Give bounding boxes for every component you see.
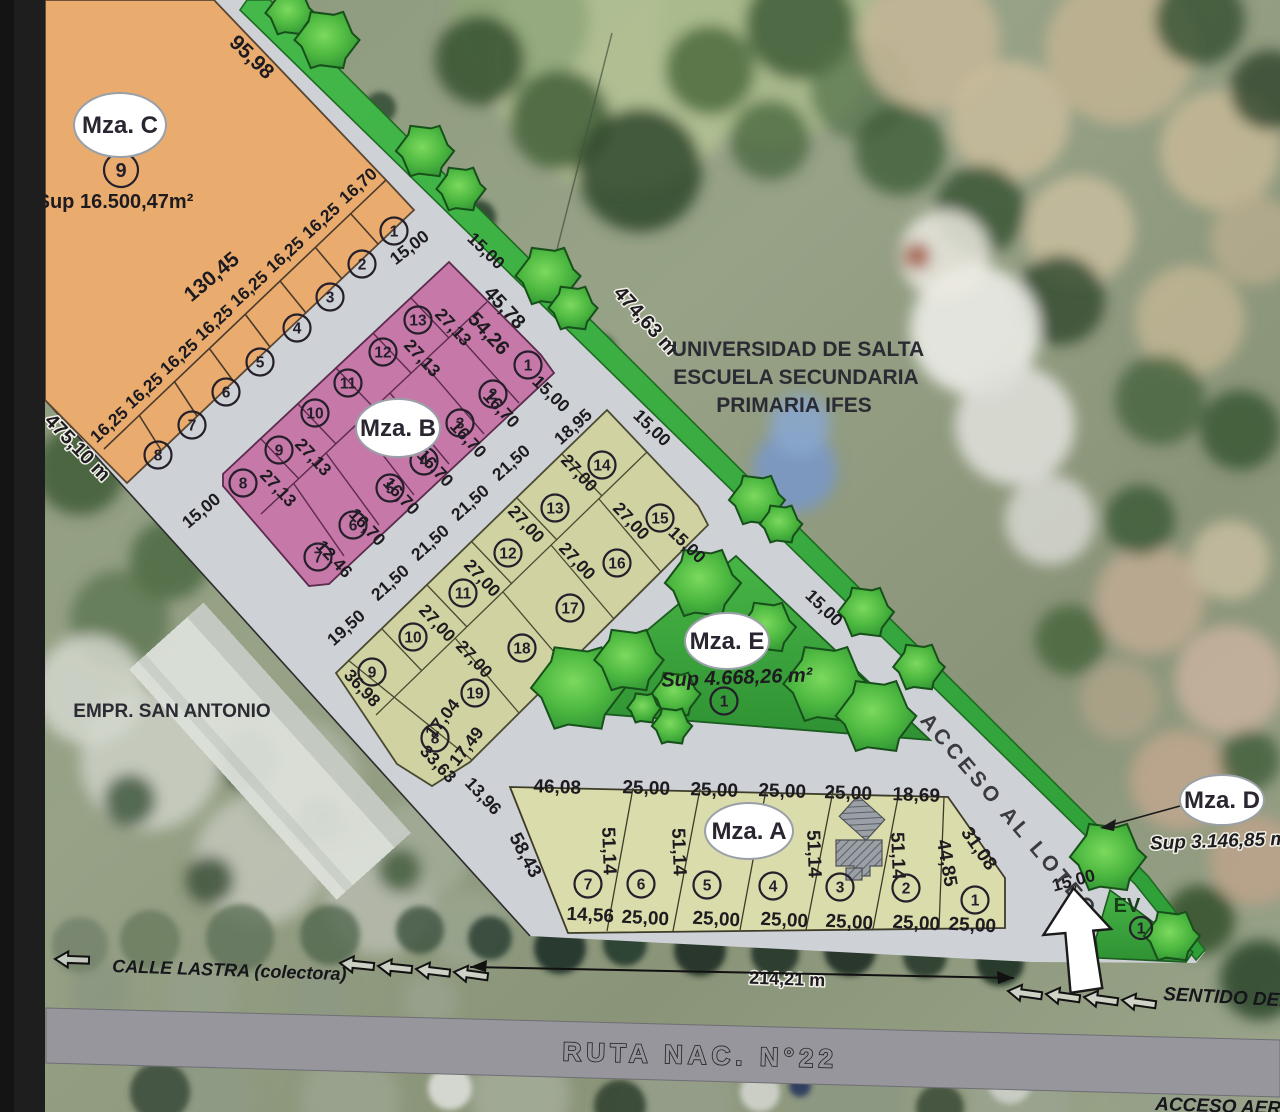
lot-number: 11 — [340, 376, 357, 393]
lot-number: 2 — [902, 881, 911, 898]
lot-number: 16 — [608, 556, 626, 573]
loteo-plan-map: EV RUTA NAC. N°22 95, — [0, 0, 1280, 1112]
dimension-label: 214,21 m — [749, 968, 826, 991]
dimension-label: 51,14 — [667, 828, 690, 877]
mza-a-label-text: Mza. A — [711, 818, 786, 845]
svg-text:PRIMARIA IFES: PRIMARIA IFES — [716, 394, 872, 417]
dimension-label: 14,56 — [566, 904, 615, 927]
mza-e-label: Mza. E — [685, 613, 769, 669]
lot-number: 13 — [409, 313, 427, 330]
lot-number: 5 — [256, 355, 265, 372]
lot-number: 1 — [390, 224, 399, 241]
lot-number: 6 — [222, 385, 231, 402]
dimension-label: 25,00 — [760, 909, 809, 932]
lot-number: 1 — [971, 893, 980, 910]
dimension-label: 25,00 — [948, 914, 997, 937]
lot-number: 8 — [239, 476, 248, 493]
dimension-label: 25,00 — [892, 912, 941, 935]
mza-a-label: Mza. A — [705, 803, 793, 859]
left-border-bar-inner — [0, 0, 14, 1112]
lot-number: 7 — [314, 550, 323, 567]
lot-number: 1 — [1137, 921, 1146, 938]
dimension-label: 25,00 — [692, 908, 741, 931]
lot-number: 2 — [358, 257, 367, 274]
lot-number: 8 — [154, 448, 163, 465]
lot-number: 8 — [431, 731, 440, 748]
dimension-label: 25,00 — [690, 779, 738, 802]
dimension-label: 18,69 — [892, 784, 940, 807]
mza-c-sup: Sup 16.500,47m² — [37, 191, 194, 213]
lot-number: 4 — [293, 321, 302, 338]
lot-number: 12 — [499, 546, 516, 563]
lot-number: 4 — [769, 879, 778, 896]
mza-b-label-text: Mza. B — [360, 415, 436, 442]
lot-number: 15 — [651, 511, 669, 528]
mza-c-label: Mza. C — [74, 93, 166, 157]
svg-text:UNIVERSIDAD DE SALTA: UNIVERSIDAD DE SALTA — [672, 338, 924, 361]
dimension-label: 25,00 — [758, 780, 806, 803]
svg-text:ESCUELA SECUNDARIA: ESCUELA SECUNDARIA — [673, 366, 918, 389]
dimension-label: 51,14 — [886, 832, 909, 881]
lot-number: 11 — [455, 586, 472, 603]
mza-d-label-text: Mza. D — [1184, 787, 1260, 814]
lot-number: 9 — [368, 665, 377, 682]
lot-number: 14 — [593, 458, 611, 475]
lot-number: 12 — [374, 345, 391, 362]
lot-number: 5 — [703, 878, 712, 895]
lot-number: 3 — [836, 880, 845, 897]
lot-number: 18 — [513, 641, 531, 658]
lot-number: 4 — [420, 454, 429, 471]
lot-number: 13 — [546, 501, 564, 518]
lot-number: 7 — [188, 418, 197, 435]
lot-number: 3 — [456, 416, 465, 433]
lot-number: 1 — [524, 358, 533, 375]
lot-number: 9 — [275, 443, 284, 460]
dimension-label: 25,00 — [825, 911, 874, 934]
dimension-label: 51,14 — [802, 830, 825, 879]
lot-number: 5 — [386, 481, 395, 498]
dimension-label: 25,00 — [621, 907, 670, 930]
mza-d-sup: Sup 3.146,85 m² — [1150, 828, 1280, 854]
dimension-label: 25,00 — [824, 782, 872, 805]
dimension-label: 46,08 — [533, 776, 581, 799]
dimension-label: 51,14 — [597, 827, 620, 876]
lot-number: 17 — [561, 601, 578, 618]
mza-e-label-text: Mza. E — [690, 628, 765, 655]
lot-number: 1 — [720, 694, 729, 711]
lot-number: 2 — [489, 387, 498, 404]
lot-number: 19 — [466, 686, 484, 703]
mza-b-label: Mza. B — [356, 399, 440, 457]
lot-number: 10 — [404, 630, 421, 647]
lot-number: 6 — [637, 877, 646, 894]
ev-label: EV — [1114, 895, 1141, 917]
lot-number: 10 — [306, 406, 323, 423]
lot-number: 3 — [326, 290, 335, 307]
lot-number: 7 — [584, 877, 593, 894]
lot-number: 6 — [349, 518, 358, 535]
dimension-label: 25,00 — [622, 777, 670, 800]
empresa-text: EMPR. SAN ANTONIO — [73, 701, 270, 722]
mza-c-label-text: Mza. C — [82, 112, 158, 139]
lot-number: 9 — [115, 160, 126, 182]
